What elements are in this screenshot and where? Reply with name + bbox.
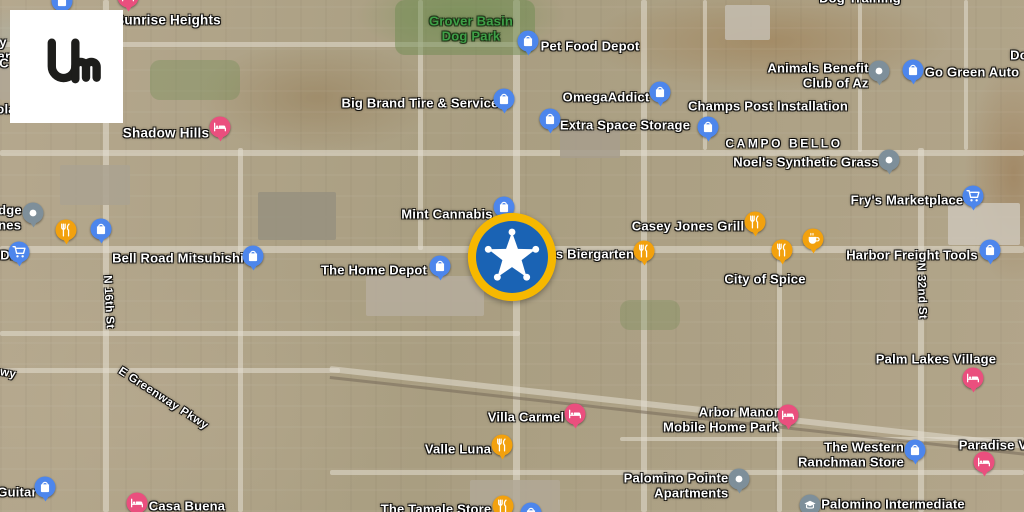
street-label: wy — [0, 366, 17, 381]
poi-pin-dot-icon[interactable] — [869, 61, 890, 82]
poi-pin-shopping-bag-icon[interactable] — [35, 477, 56, 498]
map-label[interactable]: The WesternRanchman Store — [798, 440, 904, 469]
map-label[interactable]: Extra Space Storage — [560, 119, 690, 134]
poi-pin-hotel-bed-icon[interactable] — [974, 452, 995, 473]
satellite-map-viewport[interactable]: Sunrise HeightsDog TrainingDoGrover Basi… — [0, 0, 1024, 512]
vegetation-patch — [620, 300, 680, 330]
map-label[interactable]: Palm Lakes Village — [876, 353, 996, 368]
poi-pin-shopping-bag-icon[interactable] — [903, 60, 924, 81]
street-label: E Greenway Pkwy — [116, 365, 211, 433]
map-label[interactable]: OmegaAddict — [563, 91, 650, 106]
poi-pin-shopping-bag-icon[interactable] — [494, 89, 515, 110]
liveuamap-logo[interactable]: Um — [10, 10, 123, 123]
map-label[interactable]: Palomino PointeApartments — [624, 471, 729, 500]
street-label: N 32nd St — [914, 262, 929, 319]
poi-pin-cart-icon[interactable] — [963, 186, 984, 207]
um-logo-glyph — [29, 29, 105, 105]
map-label[interactable]: Do — [1010, 49, 1024, 64]
building-footprint — [258, 192, 336, 240]
road-line — [0, 331, 520, 336]
poi-pin-restaurant-icon[interactable] — [492, 435, 513, 456]
poi-pin-hotel-bed-icon[interactable] — [565, 404, 586, 425]
poi-pin-cart-icon[interactable] — [9, 242, 30, 263]
poi-pin-shopping-bag-icon[interactable] — [698, 117, 719, 138]
map-label[interactable]: Arbor ManorMobile Home Park — [663, 405, 779, 434]
poi-pin-shopping-bag-icon[interactable] — [518, 31, 539, 52]
poi-pin-restaurant-icon[interactable] — [745, 212, 766, 233]
map-label[interactable]: Fry's Marketplace — [851, 194, 964, 209]
map-label[interactable]: Valle Luna — [425, 443, 491, 458]
map-label[interactable]: Go Green Auto — [925, 66, 1020, 81]
map-label[interactable]: Noel's Synthetic Grass — [733, 156, 879, 171]
poi-pin-shopping-bag-icon[interactable] — [430, 256, 451, 277]
poi-pin-shopping-bag-icon[interactable] — [980, 240, 1001, 261]
road-line — [238, 148, 243, 512]
poi-pin-hotel-bed-icon[interactable] — [210, 117, 231, 138]
poi-pin-hotel-bed-icon[interactable] — [118, 0, 139, 8]
map-label[interactable]: The Tamale Store — [381, 503, 492, 512]
map-label: Grover BasinDog Park — [429, 14, 513, 43]
map-label[interactable]: Casa Buena — [149, 500, 225, 512]
poi-pin-restaurant-icon[interactable] — [772, 240, 793, 261]
poi-pin-restaurant-icon[interactable] — [493, 496, 514, 512]
poi-pin-dot-icon[interactable] — [729, 469, 750, 490]
map-label[interactable]: Pet Food Depot — [541, 40, 640, 55]
map-label[interactable]: Champs Post Installation — [688, 100, 848, 115]
vegetation-patch — [150, 60, 240, 100]
map-label[interactable]: Dog Training — [819, 0, 901, 6]
map-label[interactable]: C — [0, 57, 9, 72]
poi-pin-shopping-bag-icon[interactable] — [905, 440, 926, 461]
sheriff-star-icon — [464, 209, 560, 305]
map-label[interactable]: s Biergarten — [556, 248, 634, 263]
road-line — [0, 368, 340, 373]
map-label[interactable]: Animals BenefitClub of Az — [767, 61, 868, 90]
poi-pin-hotel-bed-icon[interactable] — [963, 368, 984, 389]
poi-pin-restaurant-icon[interactable] — [634, 241, 655, 262]
building-footprint — [948, 203, 1020, 245]
map-label[interactable]: Bell Road Mitsubishi — [112, 252, 244, 267]
poi-pin-coffee-icon[interactable] — [803, 229, 824, 250]
map-label[interactable]: Paradise V — [959, 439, 1024, 454]
map-label[interactable]: Palomino Intermediate — [821, 498, 965, 512]
poi-pin-shopping-bag-icon[interactable] — [650, 82, 671, 103]
map-label[interactable]: City of Spice — [724, 273, 805, 288]
poi-pin-dot-icon[interactable] — [23, 203, 44, 224]
poi-pin-restaurant-icon[interactable] — [56, 220, 77, 241]
building-footprint — [60, 165, 130, 205]
map-label[interactable]: Villa Carmel — [488, 411, 565, 426]
poi-pin-hotel-bed-icon[interactable] — [127, 493, 148, 512]
map-label: Shadow Hills — [123, 125, 209, 140]
poi-pin-dot-icon[interactable] — [879, 150, 900, 171]
map-label[interactable]: Big Brand Tire & Service — [341, 97, 498, 112]
street-label: N 16th St — [100, 275, 116, 329]
map-label[interactable]: Harbor Freight Tools — [846, 249, 978, 264]
poi-pin-shopping-bag-icon[interactable] — [91, 219, 112, 240]
building-footprint — [725, 5, 770, 40]
poi-pin-shopping-bag-icon[interactable] — [243, 246, 264, 267]
map-label[interactable]: The Home Depot — [321, 264, 427, 279]
map-label: CAMPO BELLO — [725, 137, 842, 150]
sheriff-star-event-marker[interactable] — [464, 209, 560, 305]
building-footprint — [560, 130, 620, 158]
poi-pin-hotel-bed-icon[interactable] — [778, 405, 799, 426]
poi-pin-shopping-bag-icon[interactable] — [540, 109, 561, 130]
map-label[interactable]: Guitar — [0, 486, 37, 501]
map-label[interactable]: Casey Jones Grill — [632, 220, 745, 235]
poi-pin-school-cap-icon[interactable] — [800, 495, 821, 512]
map-label[interactable]: dgenes — [0, 203, 22, 232]
